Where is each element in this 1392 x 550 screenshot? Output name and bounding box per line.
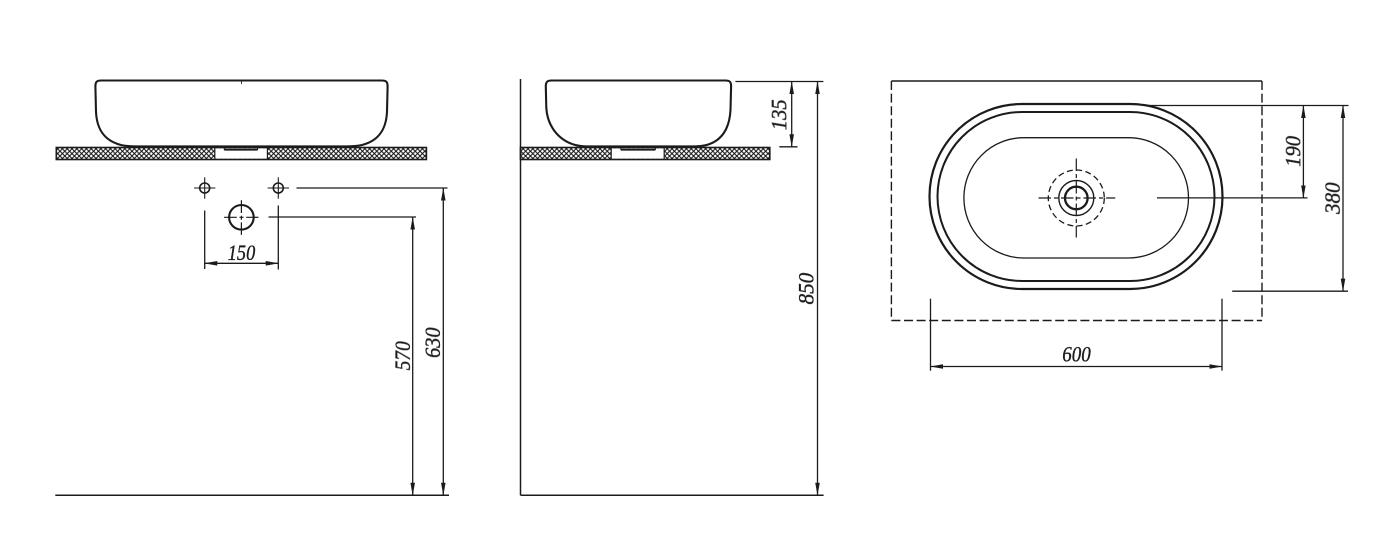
svg-text:190: 190 [1280, 136, 1305, 167]
svg-text:630: 630 [420, 327, 445, 358]
svg-text:150: 150 [228, 240, 256, 265]
svg-text:380: 380 [1320, 182, 1345, 215]
svg-text:570: 570 [390, 341, 415, 370]
svg-text:850: 850 [794, 273, 819, 305]
svg-text:135: 135 [766, 99, 791, 130]
svg-text:600: 600 [1062, 342, 1091, 367]
